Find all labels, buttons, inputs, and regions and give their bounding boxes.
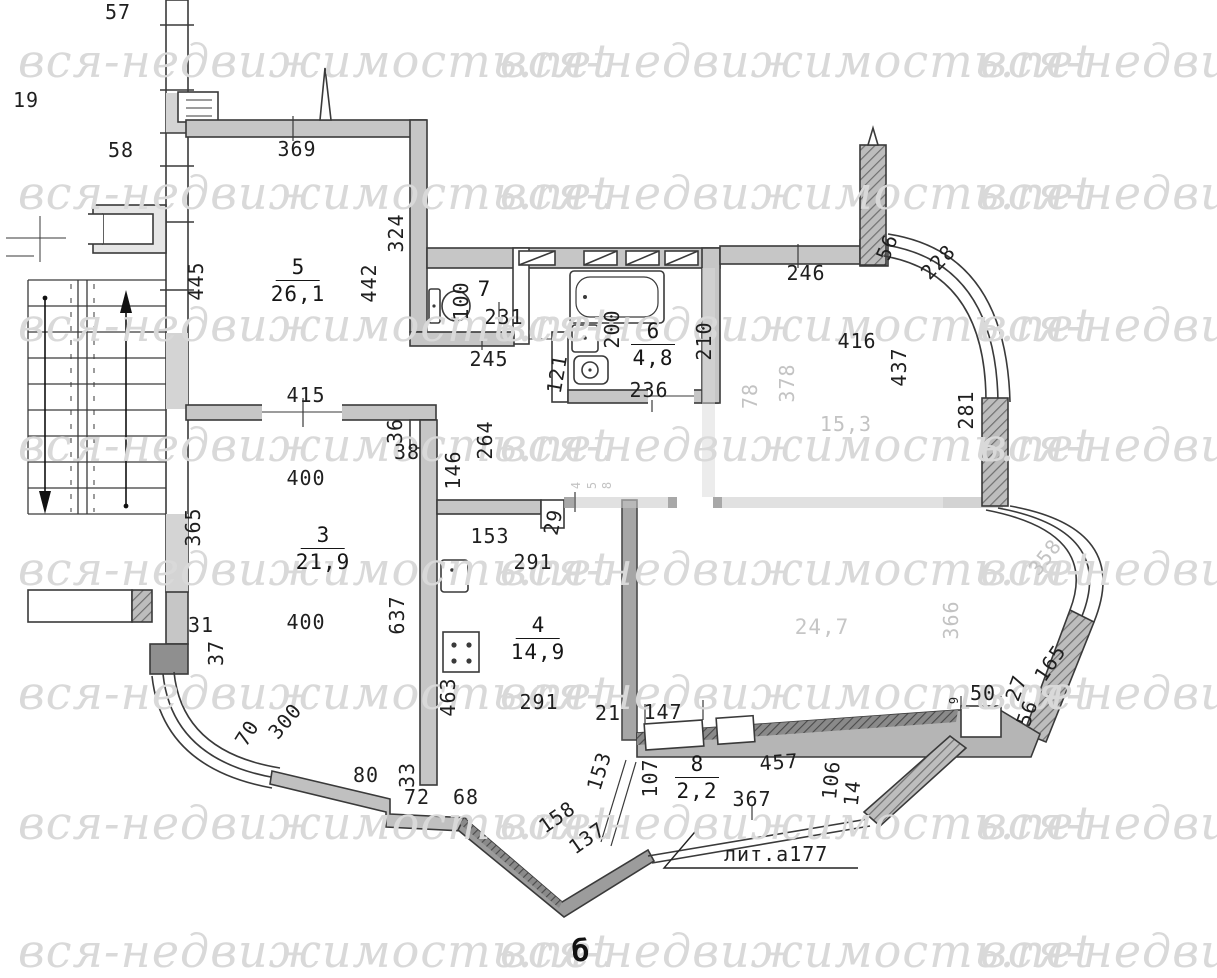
staircase <box>28 280 166 514</box>
stair-direction-arrows <box>39 290 132 514</box>
toilet-icon <box>429 289 470 323</box>
survey-cross-mark <box>6 216 66 262</box>
scanned-floor-plan: вся-недвижимость.netвся-недвижимость.net… <box>0 0 1217 960</box>
balcony-door-opening <box>716 716 755 745</box>
washbasin-icon <box>574 356 608 384</box>
floorplan-drawing <box>0 0 1217 960</box>
window-50 <box>961 706 1001 737</box>
left-wall-strip <box>160 0 194 592</box>
building-walls <box>150 68 888 785</box>
litera-label: лит.а177 <box>724 842 828 866</box>
bay-window-top-right <box>884 234 1010 506</box>
bathtub-icon <box>570 271 664 323</box>
vent-boxes <box>519 251 698 265</box>
kitchen-sink-icon <box>441 560 468 592</box>
sink-icon <box>572 325 598 352</box>
bay-window-right <box>986 506 1103 742</box>
bay-window-bottom-left <box>152 672 280 788</box>
window-pier <box>860 128 886 265</box>
landing-window <box>28 590 152 622</box>
bottom-outer-walls <box>270 771 654 917</box>
stove-icon <box>443 632 479 672</box>
arrow-up-icon <box>120 290 132 313</box>
duct-niche <box>88 205 166 253</box>
window-147 <box>644 720 704 750</box>
arrow-down-icon <box>39 491 51 514</box>
vent-shaft <box>178 92 218 122</box>
living-bottom-wall <box>637 706 1040 757</box>
